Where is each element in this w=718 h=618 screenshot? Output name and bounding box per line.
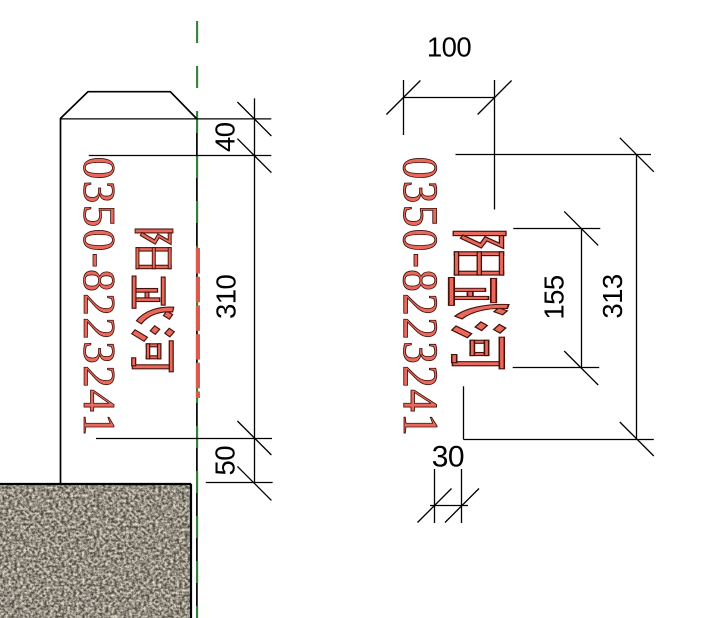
svg-text:155: 155 [539, 275, 570, 319]
svg-text:50: 50 [209, 446, 240, 476]
svg-text:313: 313 [597, 274, 628, 318]
svg-text:310: 310 [211, 275, 242, 319]
svg-text:40: 40 [210, 122, 241, 152]
svg-text:100: 100 [427, 32, 471, 63]
svg-text:30: 30 [432, 441, 464, 474]
svg-text:0350-8223241: 0350-8223241 [392, 157, 446, 437]
svg-text:0350-8223241: 0350-8223241 [74, 157, 124, 438]
